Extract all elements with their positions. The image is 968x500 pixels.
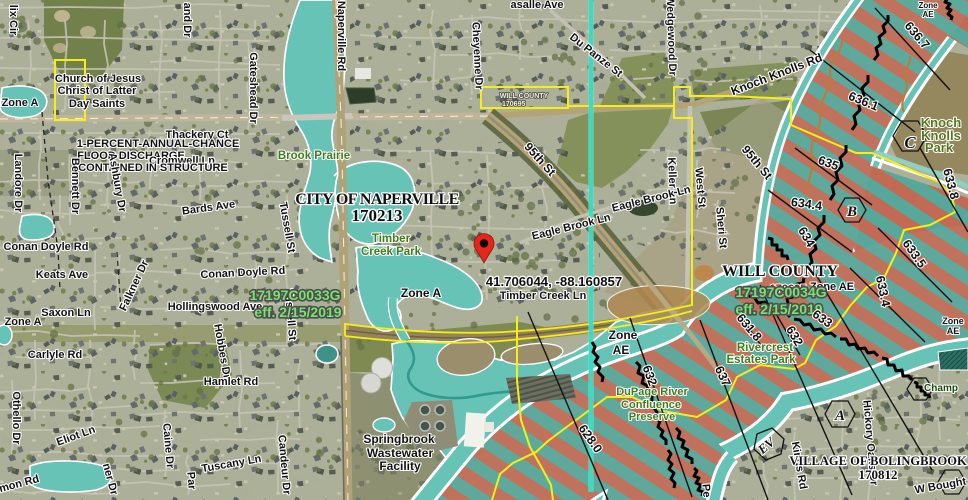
svg-text:Conan Doyle Rd: Conan Doyle Rd (4, 241, 89, 253)
svg-text:170812: 170812 (859, 467, 898, 482)
svg-text:Gateshead Dr: Gateshead Dr (247, 52, 259, 124)
svg-text:Rivercrest: Rivercrest (737, 342, 793, 354)
svg-text:17197C0033G: 17197C0033G (249, 287, 340, 303)
svg-text:Preserve: Preserve (629, 411, 676, 423)
svg-text:AE: AE (613, 343, 630, 357)
svg-text:WILL COUNTY: WILL COUNTY (722, 263, 838, 280)
svg-text:Zone: Zone (942, 316, 964, 326)
svg-text:Naperville Rd: Naperville Rd (335, 1, 347, 71)
svg-text:Zone A: Zone A (2, 97, 39, 109)
svg-text:Zone: Zone (918, 1, 938, 10)
svg-text:eff. 2/15/2019: eff. 2/15/2019 (254, 304, 341, 320)
svg-text:Bennett Dr: Bennett Dr (69, 158, 81, 215)
svg-text:Facility: Facility (379, 459, 421, 473)
svg-text:Springbrook: Springbrook (363, 432, 435, 446)
svg-text:41.706044, -88.160857: 41.706044, -88.160857 (486, 274, 622, 289)
svg-text:Estates Park: Estates Park (726, 354, 796, 366)
svg-text:AE: AE (947, 326, 960, 336)
svg-text:Landore Dr: Landore Dr (12, 154, 24, 213)
svg-text:AE: AE (922, 10, 934, 19)
svg-text:Brook Prairie: Brook Prairie (278, 150, 350, 162)
svg-text:DuPage River: DuPage River (616, 386, 688, 398)
svg-text:170213: 170213 (352, 206, 403, 225)
svg-text:Creek Park: Creek Park (361, 246, 422, 258)
svg-text:Day Saints: Day Saints (69, 98, 125, 110)
svg-text:Carlyle Rd: Carlyle Rd (28, 349, 82, 361)
svg-text:Wastewater: Wastewater (367, 446, 434, 460)
svg-text:Christ of Latter: Christ of Latter (58, 85, 138, 97)
svg-text:Hamlet Rd: Hamlet Rd (204, 376, 258, 388)
svg-text:CONTAINED IN STRUCTURE: CONTAINED IN STRUCTURE (78, 162, 228, 174)
svg-text:A: A (834, 408, 845, 424)
svg-text:Zone: Zone (609, 328, 638, 342)
svg-text:Par: Par (184, 471, 198, 490)
svg-text:1-PERCENT-ANNUAL-CHANCE: 1-PERCENT-ANNUAL-CHANCE (77, 138, 240, 150)
svg-text:Timber: Timber (372, 233, 411, 245)
svg-text:Champ: Champ (924, 383, 958, 394)
svg-text:Pe: Pe (699, 484, 712, 498)
svg-text:WILL COUNTY: WILL COUNTY (500, 93, 549, 100)
svg-text:Zone A: Zone A (5, 316, 42, 328)
svg-text:VILLAGE OF BOLINGBROOK: VILLAGE OF BOLINGBROOK (789, 454, 967, 468)
svg-text:Hollingswood Ave: Hollingswood Ave (168, 301, 263, 313)
svg-text:Timber Creek Ln: Timber Creek Ln (500, 290, 587, 302)
svg-text:lix Cir: lix Cir (7, 5, 19, 36)
svg-text:Church of Jesus: Church of Jesus (55, 73, 141, 85)
svg-text:and Dr: and Dr (181, 3, 193, 39)
svg-text:B: B (846, 204, 857, 220)
svg-text:Zone A: Zone A (401, 286, 442, 300)
svg-text:Saxon Ln: Saxon Ln (41, 307, 91, 319)
svg-text:Confluence: Confluence (621, 399, 681, 411)
svg-text:asalle Ave: asalle Ave (510, 0, 563, 11)
svg-text:Park: Park (925, 140, 954, 155)
svg-text:C: C (904, 133, 916, 152)
svg-text:170695: 170695 (502, 101, 525, 108)
svg-text:17197C0034G: 17197C0034G (735, 284, 826, 300)
svg-text:Keats Ave: Keats Ave (36, 269, 88, 281)
svg-text:Othello Dr: Othello Dr (10, 391, 22, 445)
